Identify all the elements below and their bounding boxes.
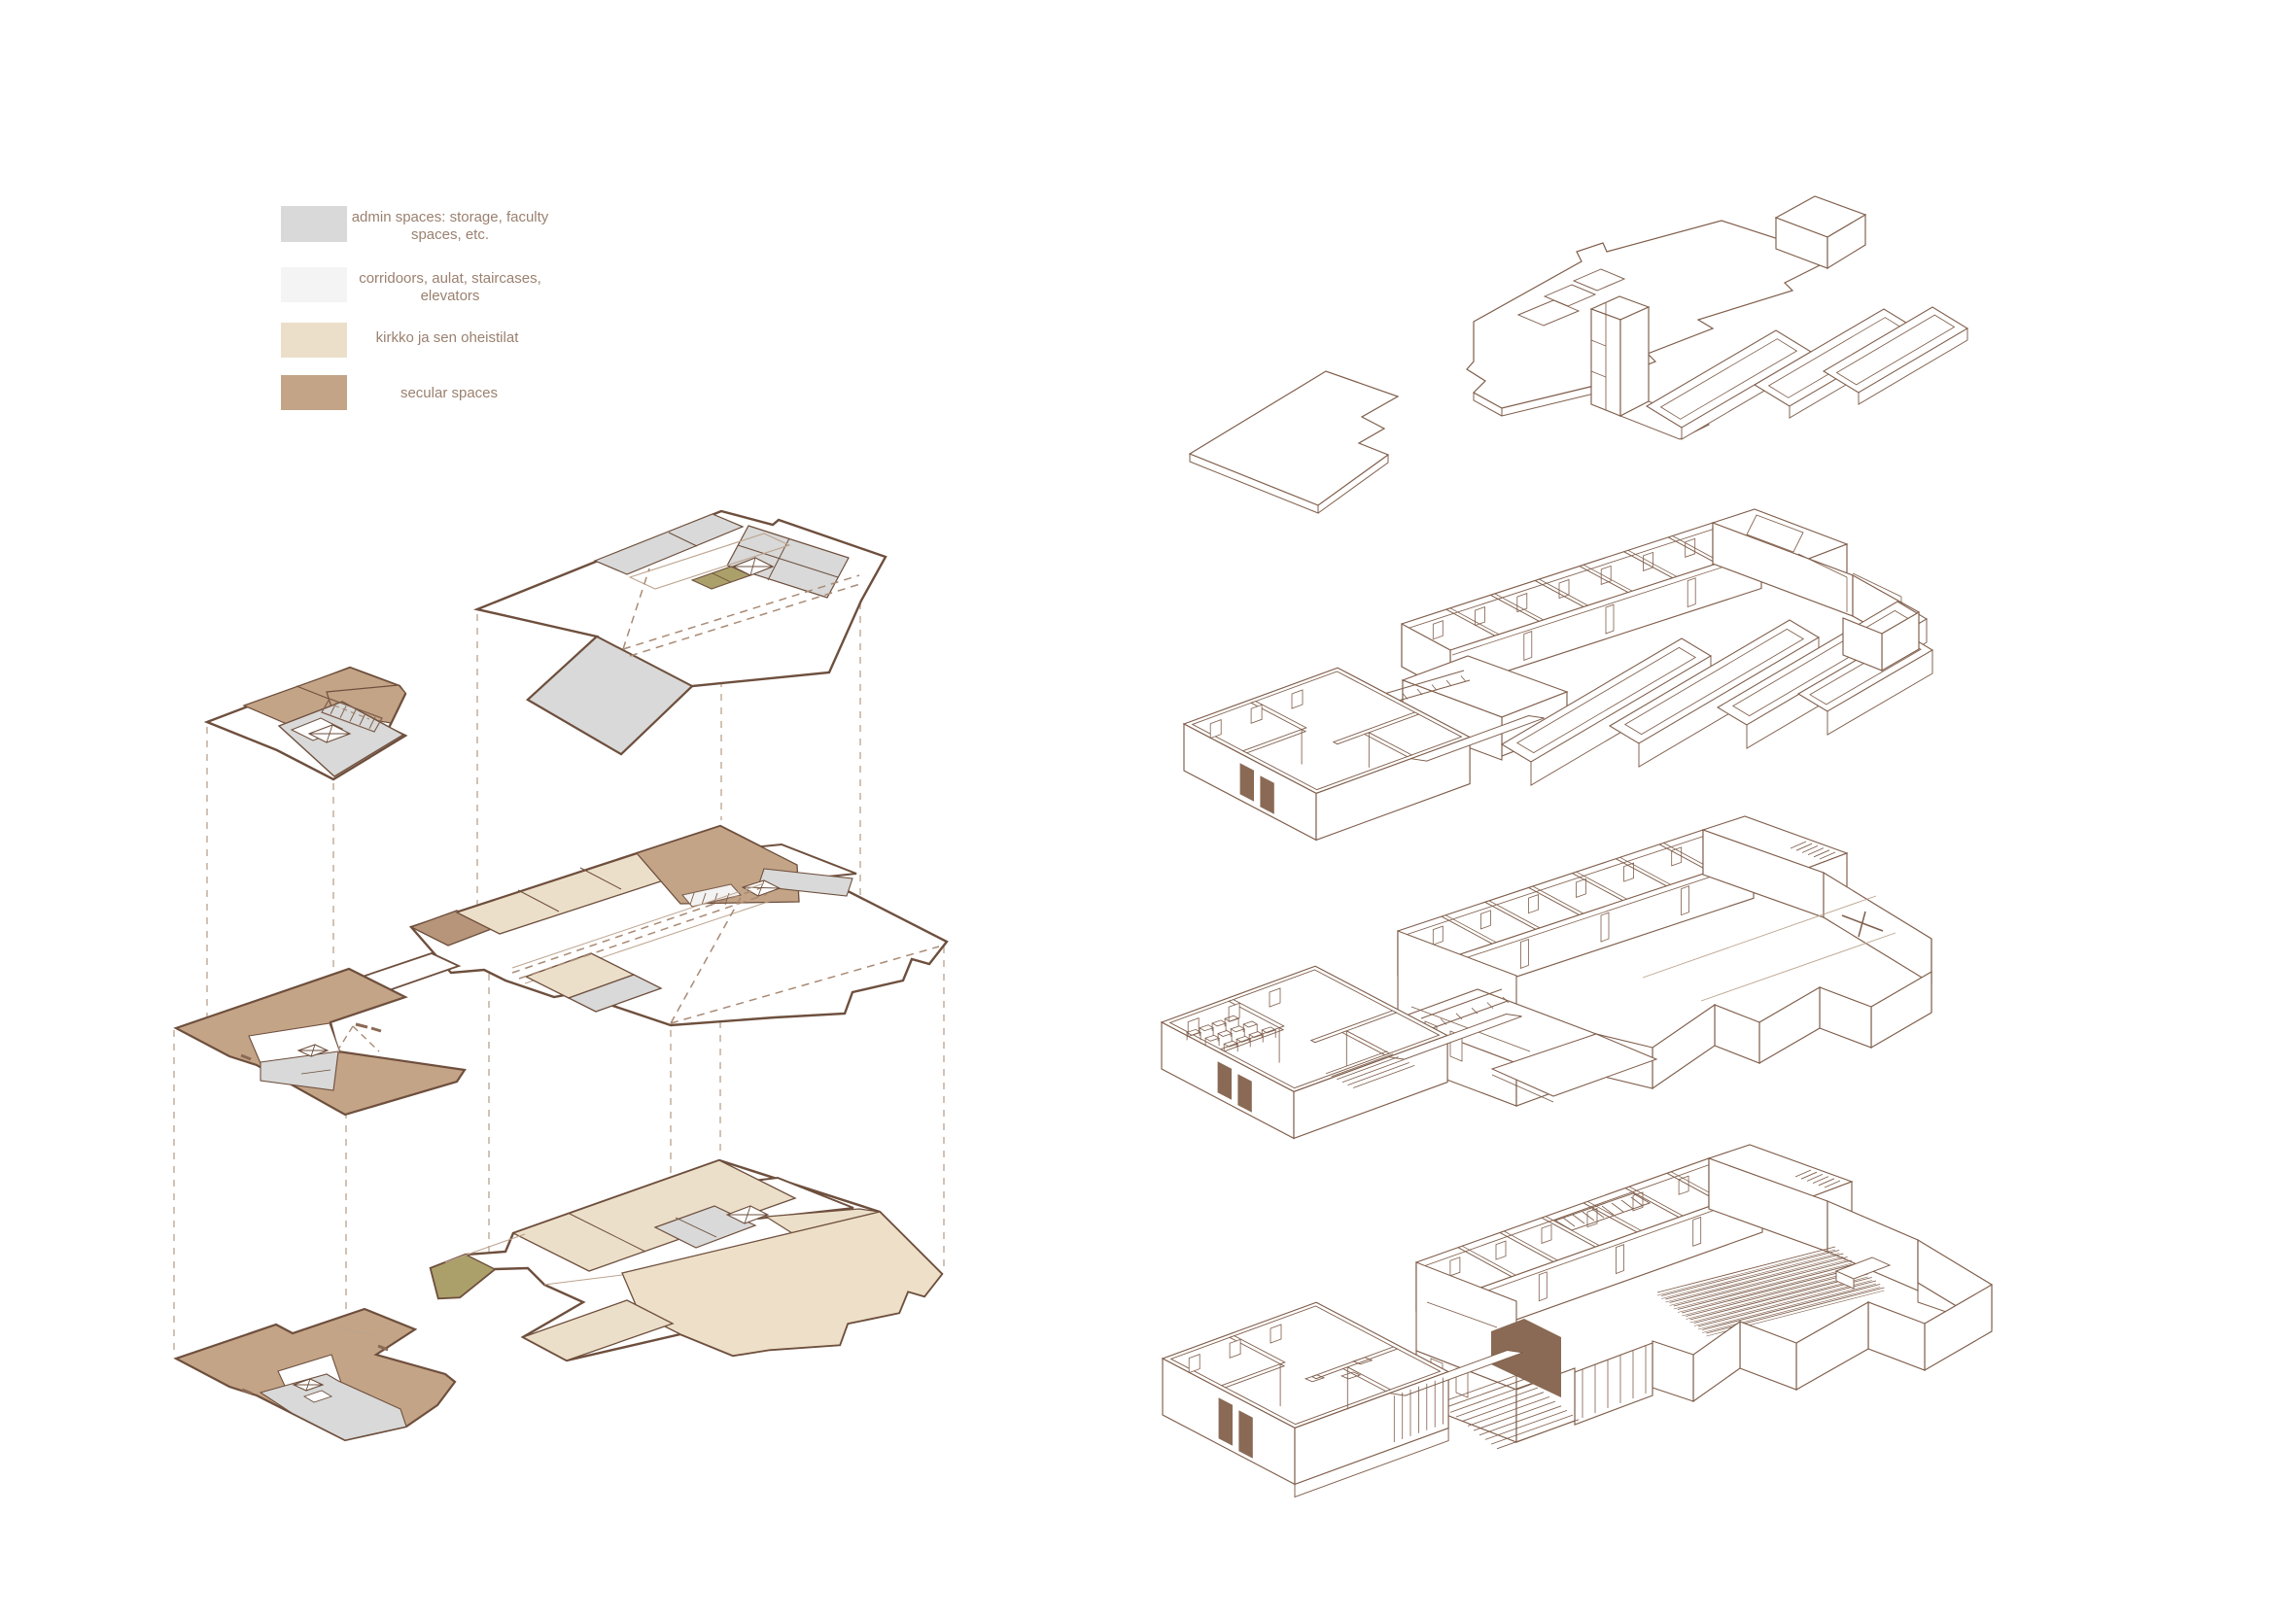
svg-text:admin spaces: storage, faculty: admin spaces: storage, faculty [352,209,549,225]
svg-text:corridoors, aulat, staircases,: corridoors, aulat, staircases, [359,270,541,287]
svg-text:secular spaces: secular spaces [400,385,498,401]
svg-text:elevators: elevators [421,288,480,304]
svg-text:kirkko ja sen oheistilat: kirkko ja sen oheistilat [376,329,520,346]
svg-text:spaces, etc.: spaces, etc. [411,226,489,243]
